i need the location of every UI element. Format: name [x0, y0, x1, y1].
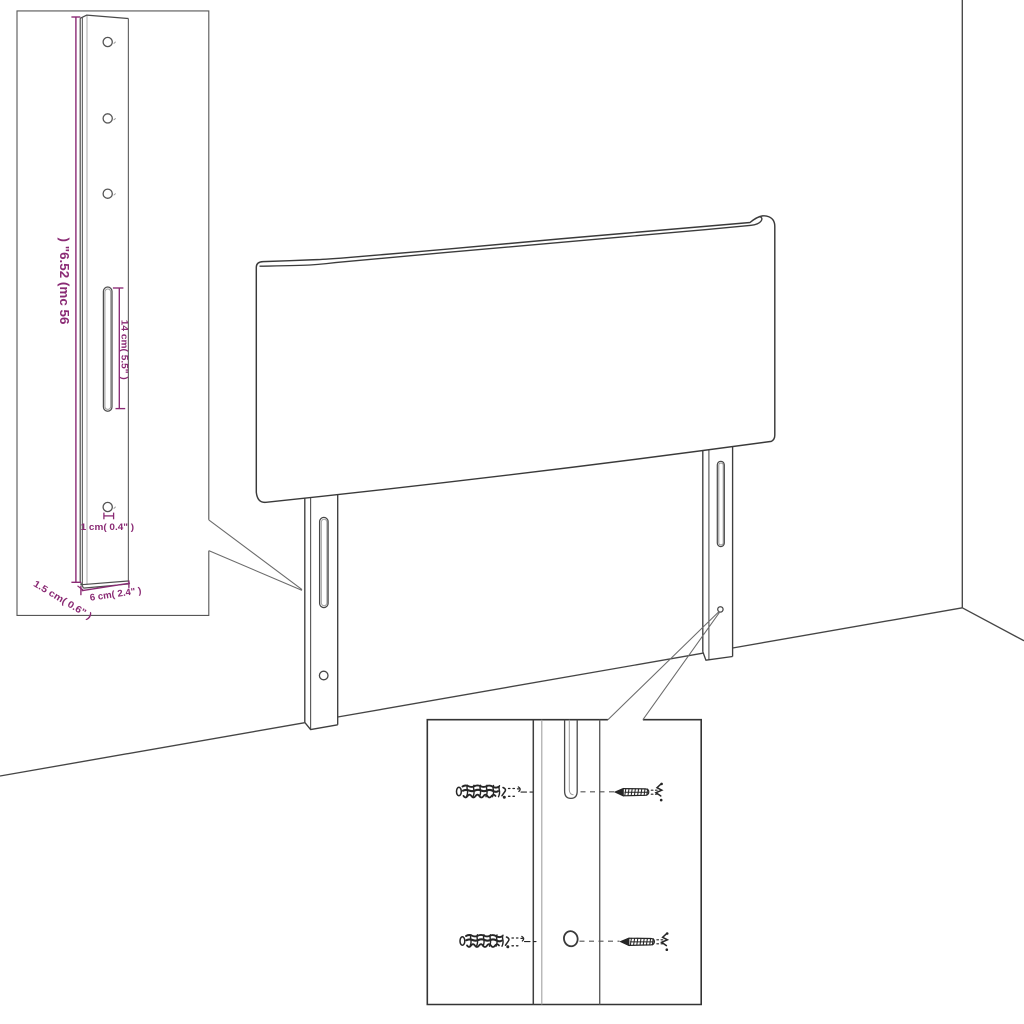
svg-text:) "6.52 (mc 56: ) "6.52 (mc 56 [57, 238, 72, 325]
svg-text:1 cm( 0.4" ): 1 cm( 0.4" ) [81, 522, 135, 533]
svg-text:14 cm( 5.5" ): 14 cm( 5.5" ) [120, 320, 130, 380]
